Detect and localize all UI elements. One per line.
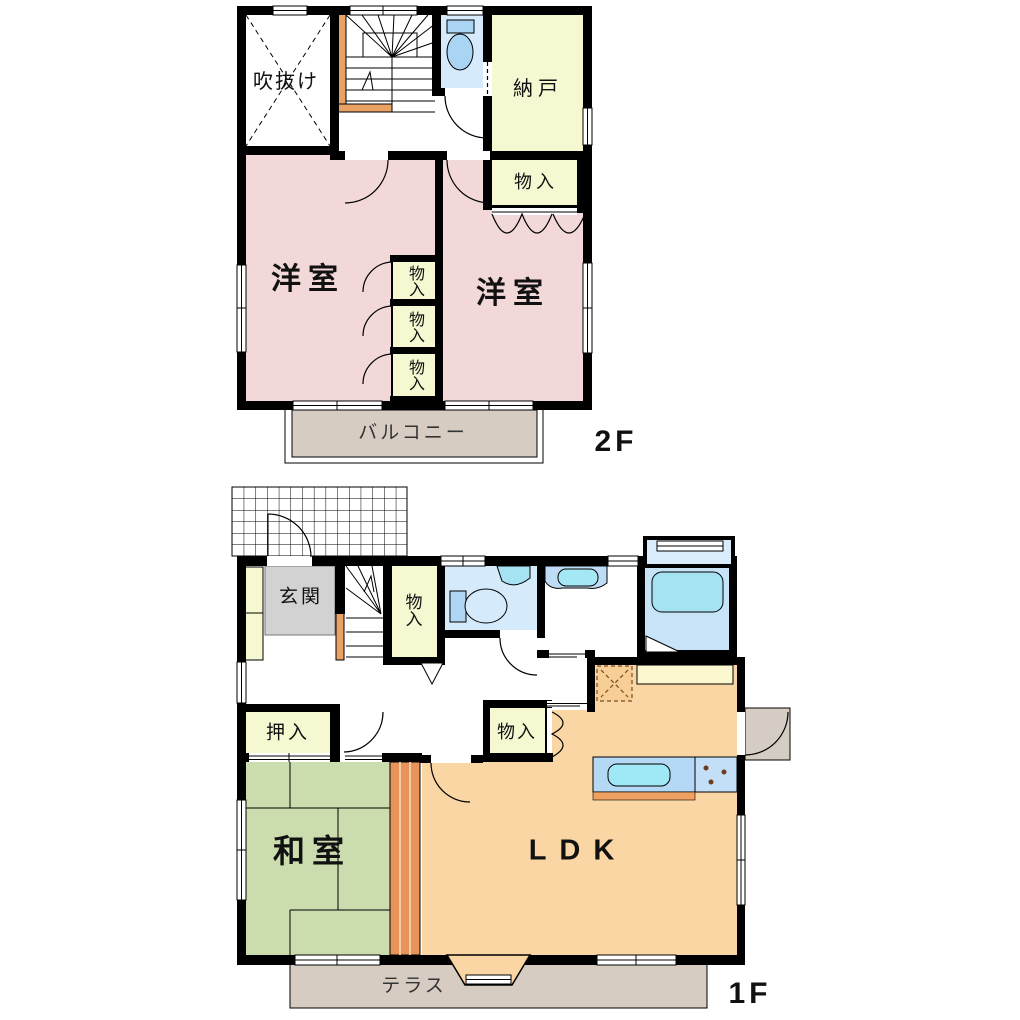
side-porch <box>745 708 790 760</box>
wall <box>593 657 745 665</box>
wall <box>390 347 443 354</box>
wall <box>237 401 592 410</box>
wall <box>471 755 483 763</box>
floor-plan-drawing <box>0 0 1020 1020</box>
room-divider-strip <box>390 762 420 955</box>
room-label-bedroom-left: 洋室 <box>271 265 345 295</box>
room-label-stair-closet: 物入 <box>404 593 421 627</box>
room-label-void: 吹抜け <box>253 72 319 92</box>
floor-label-1f: 1F <box>728 979 771 1009</box>
wall <box>237 146 339 155</box>
floor-label-2f: 2F <box>594 427 637 457</box>
wall <box>330 704 340 762</box>
floor-1f <box>232 487 790 1008</box>
vanity-icon <box>545 566 607 588</box>
stove-icon <box>695 757 737 792</box>
kitchen-sink-icon <box>608 764 670 786</box>
wall <box>391 255 393 402</box>
room-label-closet1: 物入 <box>406 265 422 297</box>
room-label-entrance: 玄関 <box>279 588 323 607</box>
bathroom-bay-window <box>645 538 733 566</box>
wall <box>382 753 422 762</box>
floor-plan-page: 吹抜け 納戸 物入 洋室 洋室 物入 物入 物入 バルコニー 2F 玄関 物入 … <box>0 0 1020 1020</box>
stair-rail-horizontal <box>337 104 392 112</box>
wall <box>537 556 545 638</box>
wall <box>237 704 340 712</box>
wall <box>587 657 595 712</box>
approach-tiles <box>232 487 407 556</box>
wall <box>390 255 443 262</box>
ldk-counter <box>637 665 733 684</box>
wall <box>390 299 443 306</box>
stair-rail-1f <box>336 612 344 660</box>
room-label-oshiire: 押入 <box>266 724 310 743</box>
wall <box>545 708 547 753</box>
wall <box>729 556 737 657</box>
room-label-storage: 納戸 <box>513 79 563 99</box>
wall <box>483 700 552 708</box>
wall <box>577 151 592 213</box>
room-label-hall-closet: 物入 <box>497 723 537 741</box>
wall <box>483 753 553 762</box>
room-label-balcony: バルコニー <box>358 424 468 443</box>
wall <box>330 6 339 155</box>
room-label-bedroom-right: 洋室 <box>476 279 550 309</box>
ldk-floor-connector <box>552 710 595 762</box>
bathtub-icon <box>652 572 723 612</box>
wall <box>737 657 745 965</box>
room-label-closet-top: 物入 <box>514 173 558 191</box>
ldk-floor-right <box>595 663 737 955</box>
wall <box>383 556 392 662</box>
room-label-japanese-room: 和室 <box>273 835 351 867</box>
room-label-closet2: 物入 <box>406 311 422 343</box>
toilet-icon <box>447 20 474 70</box>
wall <box>432 6 441 96</box>
room-label-ldk: LDK <box>529 837 628 866</box>
wall <box>483 700 490 762</box>
wall <box>435 151 443 410</box>
room-label-terrace: テラス <box>381 977 447 996</box>
room-label-closet3: 物入 <box>406 359 422 391</box>
wall <box>237 753 249 762</box>
wall <box>492 205 577 208</box>
wall <box>390 396 443 402</box>
wall <box>335 556 345 614</box>
wall <box>437 556 445 662</box>
wall <box>637 566 645 658</box>
